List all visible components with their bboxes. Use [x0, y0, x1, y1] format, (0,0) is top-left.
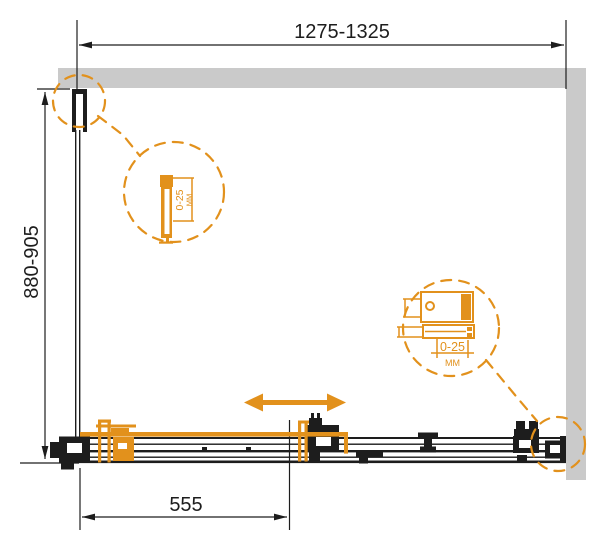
roller — [309, 418, 322, 426]
arrow-head-right — [327, 394, 346, 412]
corner-end-cap — [50, 442, 59, 458]
door-post — [298, 421, 301, 462]
profile-bar-end — [467, 333, 472, 337]
profile-stem — [166, 238, 169, 242]
profile-cap — [160, 175, 173, 187]
arrow-head-left — [244, 394, 263, 412]
side-wall-right — [566, 68, 586, 480]
overall-depth-label: 880-905 — [21, 225, 43, 298]
screw — [202, 447, 207, 450]
door-roller-slot — [118, 443, 127, 449]
door-post — [305, 421, 308, 462]
carriage-foot — [517, 455, 527, 463]
guide-roller-foot — [420, 447, 436, 453]
detail-callouts — [53, 75, 585, 471]
profile-bar-end — [467, 327, 472, 331]
wall-profile-detail: 0-25 ММ — [159, 175, 194, 244]
back-wall — [58, 68, 586, 88]
roller — [529, 421, 538, 429]
profile-slot — [165, 189, 170, 234]
arrow-up-icon — [42, 92, 49, 105]
door-width-label: 555 — [169, 494, 202, 516]
corner-block-slot — [67, 443, 82, 453]
roller-hatch-block — [461, 294, 471, 320]
glass-edge-line — [79, 130, 80, 437]
callout-leader-right — [486, 360, 537, 421]
guide-roller-cap — [418, 433, 438, 439]
roller — [516, 421, 525, 429]
wall-profile-cap — [72, 89, 87, 94]
adjust-range-label: 0-25 — [440, 340, 465, 354]
door-carriage-bar — [96, 425, 136, 428]
bottom-guide-foot — [359, 458, 368, 464]
depth-dimension: 880-905 — [20, 89, 79, 463]
door-end-profile — [344, 437, 348, 454]
callout-leader-left — [98, 116, 140, 156]
arrow-left-icon — [82, 514, 95, 521]
carriage-slot — [316, 437, 331, 446]
carriage-foot — [309, 452, 320, 461]
wall-end-plate — [560, 436, 566, 462]
slide-direction-arrow-icon — [244, 394, 346, 412]
arrow-down-icon — [42, 446, 49, 459]
profile-foot — [159, 242, 173, 244]
screw-icon — [426, 302, 434, 310]
adjust-unit-label: ММ — [445, 358, 460, 368]
overall-width-label: 1275-1325 — [294, 21, 390, 43]
arrow-left-icon — [79, 42, 92, 49]
screw — [246, 447, 251, 450]
carriage-slot — [519, 440, 531, 448]
bottom-guide — [356, 451, 383, 458]
adjust-unit-label: ММ — [185, 194, 194, 207]
corner-foot — [61, 463, 74, 470]
technical-drawing-canvas: 1275-1325 880-905 555 — [0, 0, 600, 544]
roller-detail: 0-25 ММ — [397, 292, 474, 368]
shower-enclosure-plan-drawing: 1275-1325 880-905 555 — [0, 0, 600, 544]
side-glass-panel — [72, 89, 87, 437]
glass-edge-line — [75, 130, 76, 437]
wall-bracket-slot — [550, 445, 560, 453]
door-roller-top — [111, 428, 129, 437]
arrow-right-icon — [551, 42, 564, 49]
guide-roller-post — [424, 439, 432, 447]
arrow-right-icon — [274, 514, 287, 521]
